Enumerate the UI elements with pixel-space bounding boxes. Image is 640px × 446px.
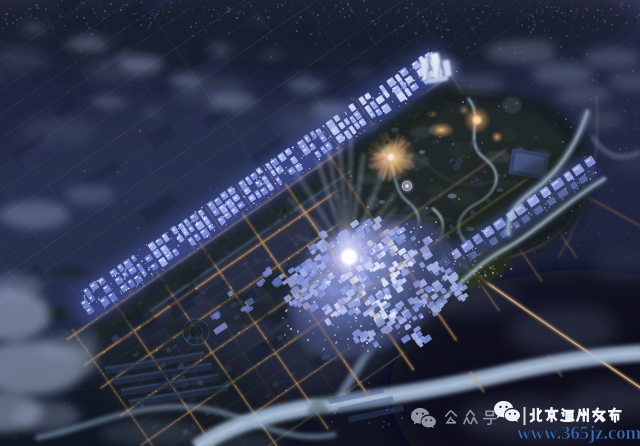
svg-text:www.365jz.com: www.365jz.com: [517, 423, 640, 444]
